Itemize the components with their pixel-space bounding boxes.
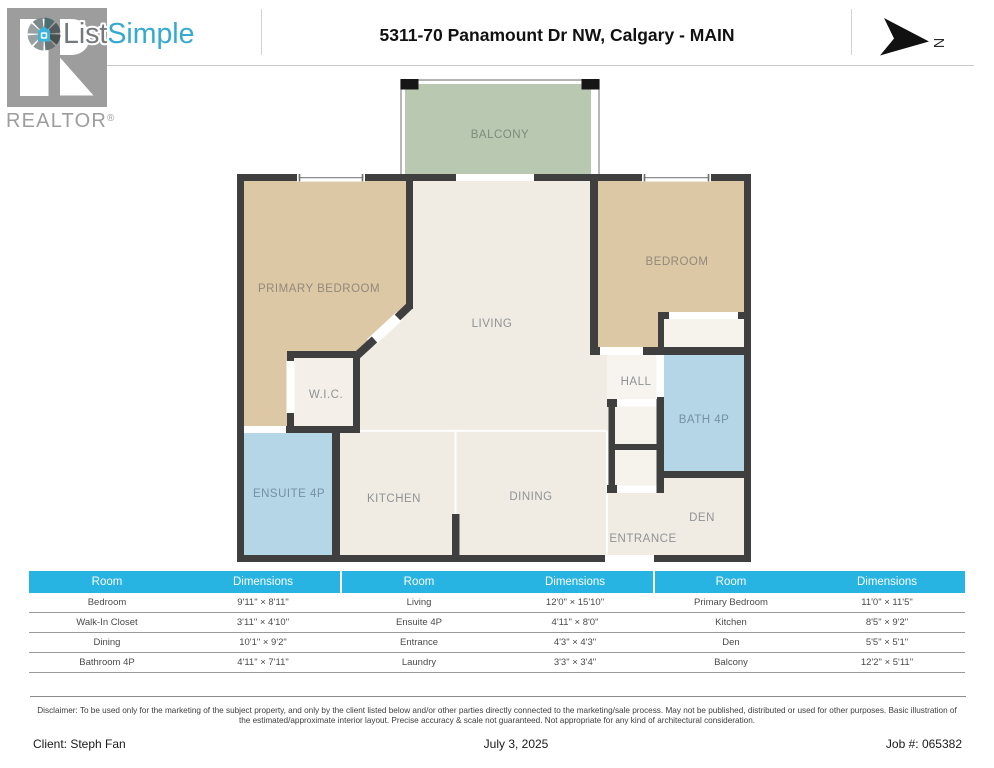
svg-text:BEDROOM: BEDROOM — [646, 256, 709, 268]
svg-text:HALL: HALL — [621, 376, 652, 388]
svg-text:DEN: DEN — [689, 512, 715, 524]
svg-text:BALCONY: BALCONY — [471, 129, 529, 141]
svg-text:ENSUITE 4P: ENSUITE 4P — [253, 488, 325, 500]
svg-text:LIVING: LIVING — [472, 318, 513, 330]
svg-text:ENTRANCE: ENTRANCE — [609, 533, 676, 545]
svg-text:W.I.C.: W.I.C. — [309, 389, 343, 401]
svg-text:BATH 4P: BATH 4P — [679, 414, 730, 426]
svg-text:DINING: DINING — [509, 491, 552, 503]
svg-text:KITCHEN: KITCHEN — [367, 493, 421, 505]
svg-text:PRIMARY BEDROOM: PRIMARY BEDROOM — [258, 283, 380, 295]
